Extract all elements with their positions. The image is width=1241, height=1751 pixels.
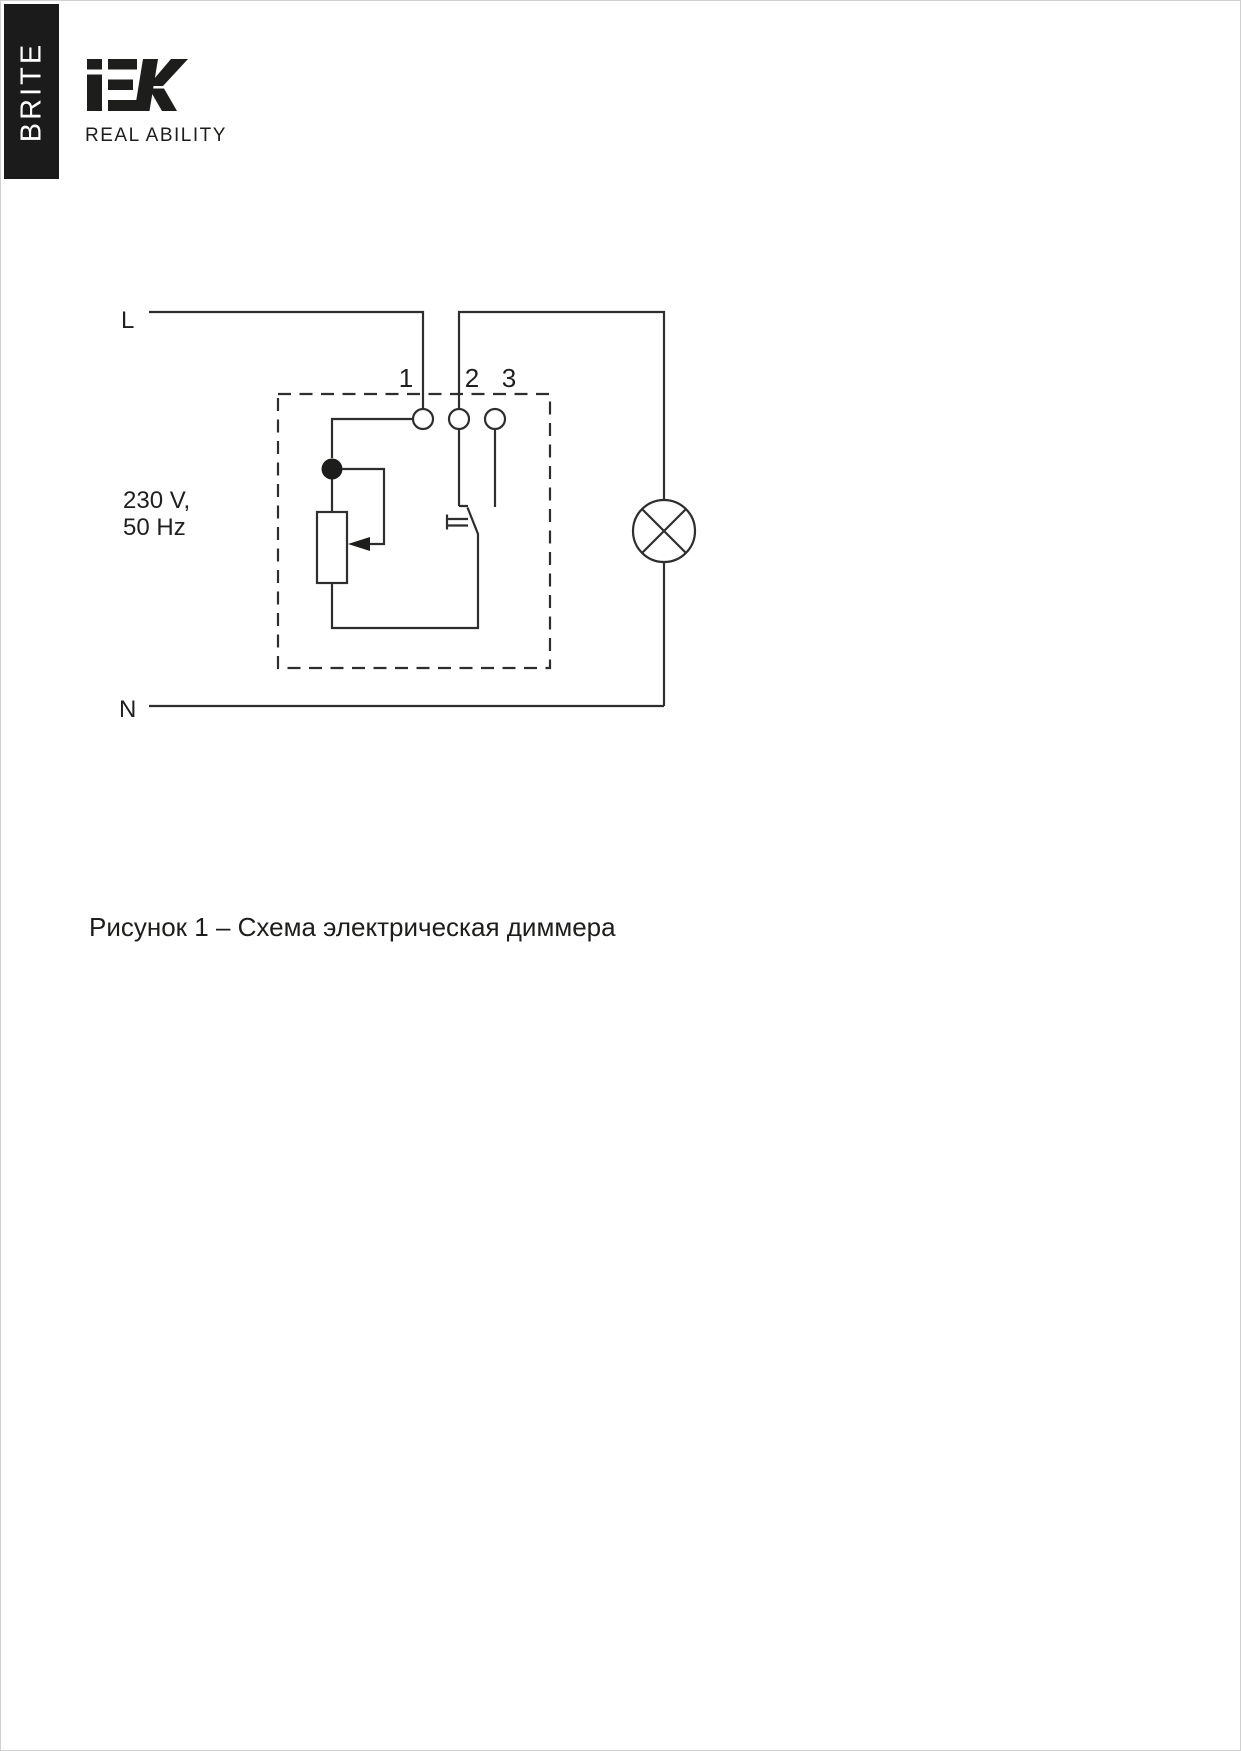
wiper-arrow-icon [348,537,370,551]
voltage-label: 230 V, [123,487,190,514]
brand-tagline: REAL ABILITY [85,125,227,147]
figure-caption: Рисунок 1 – Схема электрическая диммера [89,910,616,944]
switch-contact-wire [459,430,468,506]
terminal-3-icon [485,409,505,429]
neutral-label: N [119,696,136,723]
push-switch-actuator-icon [447,515,468,530]
terminal-1-label: 1 [399,363,413,393]
terminal1-to-pot-wire [332,419,413,458]
terminal-2-icon [449,409,469,429]
logo-k-lower-arm [149,89,177,112]
iek-logo-icon [86,58,188,112]
series-badge-banner: BRITE [4,4,59,179]
circuit-diagram: L N 230 V, 50 Hz 1 2 3 [81,281,761,761]
logo-e-top-bar [108,59,137,70]
frequency-label: 50 Hz [123,514,186,541]
junction-dot-icon [322,459,343,480]
logo-e-mid-bar [108,80,133,91]
terminal-1-icon [413,409,433,429]
logo-i-stem [87,75,102,112]
lamp-feed-wire [459,312,664,499]
series-badge-label: BRITE [15,41,48,141]
line-label: L [121,307,134,334]
manual-page: BRITE REAL ABILITY [0,0,1241,1751]
logo-e-bottom-bar [108,100,137,111]
wiper-wire [343,469,385,544]
logo-i-dot [87,59,102,70]
terminal-3-label: 3 [502,363,516,393]
terminal-2-label: 2 [465,363,479,393]
potentiometer-icon [317,512,347,583]
